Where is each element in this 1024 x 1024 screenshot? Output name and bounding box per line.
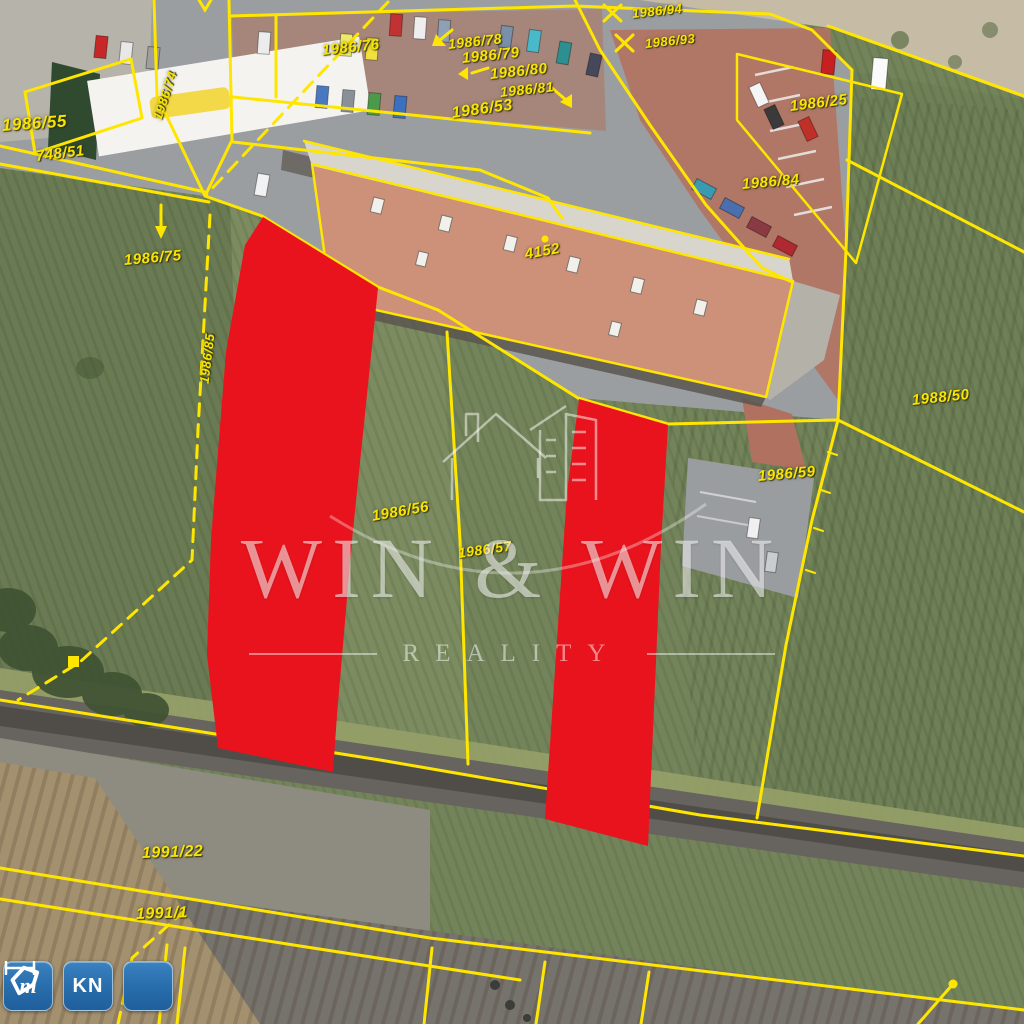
map-viewport[interactable]: 1986/55748/511986/741986/941986/931986/7… xyxy=(0,0,1024,1024)
kn-button[interactable]: KN xyxy=(63,961,113,1011)
map-controls: m KN xyxy=(3,961,173,1011)
aerial-map-canvas xyxy=(0,0,1024,1024)
polygon-tool-button[interactable] xyxy=(123,961,173,1011)
polygon-icon xyxy=(3,961,41,999)
square-marker xyxy=(68,656,79,667)
kn-label: KN xyxy=(73,975,104,998)
